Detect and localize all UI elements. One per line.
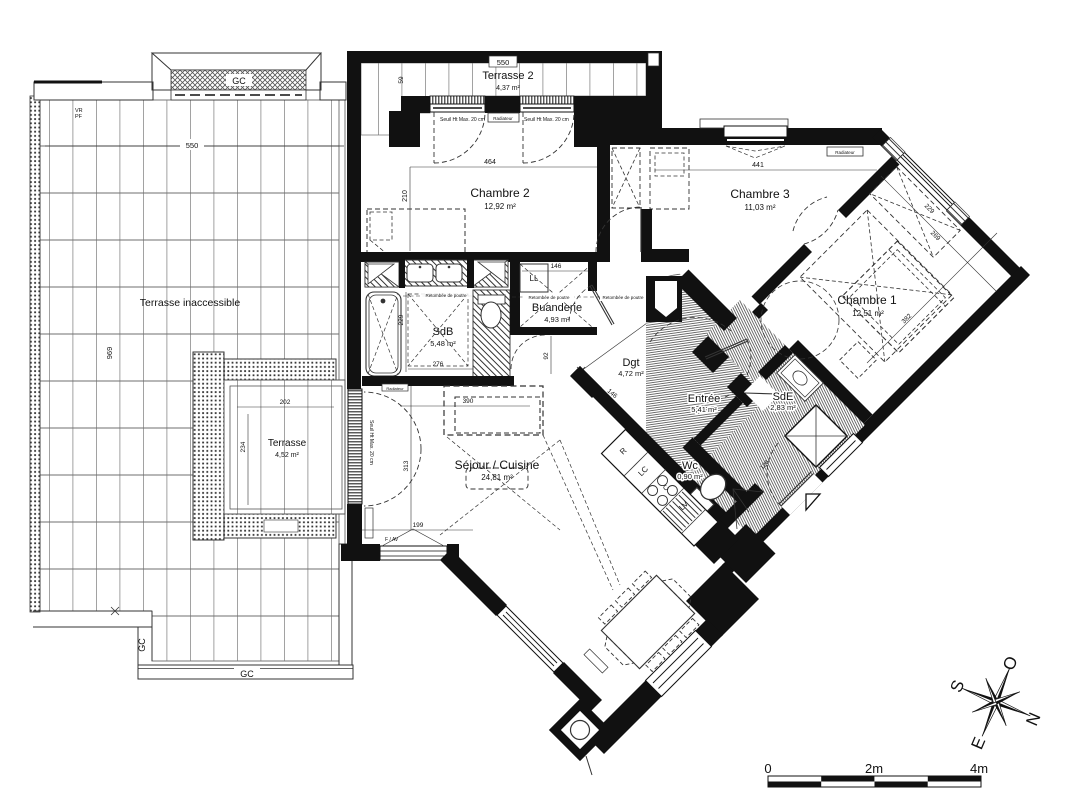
svg-text:Seuil Ht Max. 20 cm: Seuil Ht Max. 20 cm [440,117,485,123]
svg-text:0: 0 [764,761,771,776]
svg-text:4,72 m²: 4,72 m² [618,369,644,378]
svg-text:234: 234 [240,441,247,452]
svg-text:Dgt: Dgt [622,357,639,369]
svg-text:Retombée de poutre: Retombée de poutre [528,295,570,300]
svg-text:Seuil Ht Max. 20 cm: Seuil Ht Max. 20 cm [524,117,569,123]
svg-text:Retombée de poutre: Retombée de poutre [602,295,644,300]
svg-text:11,03 m²: 11,03 m² [745,203,776,212]
svg-text:Radiateur: Radiateur [835,150,855,155]
svg-text:146: 146 [551,263,562,270]
svg-text:229: 229 [923,203,936,216]
svg-text:Séjour / Cuisine: Séjour / Cuisine [455,458,540,472]
svg-text:210: 210 [402,190,409,202]
svg-text:4,37 m²: 4,37 m² [496,85,520,92]
svg-text:269: 269 [929,230,942,243]
svg-text:Chambre 3: Chambre 3 [730,187,790,201]
svg-text:2,83 m²: 2,83 m² [770,403,796,412]
svg-text:Wc: Wc [682,460,698,472]
svg-text:GC: GC [240,669,254,679]
svg-text:Terrasse 2: Terrasse 2 [482,70,533,82]
svg-text:GC: GC [232,76,246,86]
svg-text:59: 59 [398,76,405,84]
svg-text:PF: PF [75,114,83,120]
svg-text:O: O [999,653,1022,673]
svg-text:4m: 4m [970,761,988,776]
svg-text:SdE: SdE [773,391,794,403]
svg-text:LL: LL [530,274,539,283]
svg-text:Retombée de poutre: Retombée de poutre [425,293,467,298]
svg-text:550: 550 [186,141,199,150]
svg-text:5,41 m²: 5,41 m² [691,405,717,414]
svg-text:Radiateur: Radiateur [493,116,513,121]
svg-text:2m: 2m [865,761,883,776]
svg-text:GC: GC [137,638,147,652]
svg-text:441: 441 [752,162,764,169]
svg-text:Entrée: Entrée [688,393,720,405]
svg-text:0,90 m²: 0,90 m² [677,472,703,481]
svg-text:4,52 m²: 4,52 m² [275,452,299,459]
svg-text:969: 969 [105,347,114,360]
svg-text:382: 382 [901,312,914,325]
svg-text:Radiateur: Radiateur [386,386,404,391]
svg-text:199: 199 [413,522,424,529]
svg-text:E: E [967,734,989,752]
svg-text:Terrasse: Terrasse [268,438,307,449]
svg-text:276: 276 [433,361,444,368]
svg-text:550: 550 [497,58,510,67]
svg-text:12,92 m²: 12,92 m² [484,202,516,211]
svg-text:F / AV: F / AV [385,537,399,543]
svg-text:202: 202 [280,399,291,406]
svg-text:229: 229 [398,314,405,325]
svg-text:464: 464 [484,159,496,166]
svg-text:4,93 m²: 4,93 m² [544,315,570,324]
svg-text:Chambre 2: Chambre 2 [470,186,530,200]
svg-text:313: 313 [403,460,410,471]
svg-text:N: N [1022,710,1044,729]
svg-text:390: 390 [463,398,474,405]
svg-text:Terrasse inaccessible: Terrasse inaccessible [140,297,241,309]
svg-text:S: S [946,677,968,695]
svg-text:92: 92 [543,352,550,360]
svg-text:Seuil Ht Max. 20 cm: Seuil Ht Max. 20 cm [368,420,374,465]
